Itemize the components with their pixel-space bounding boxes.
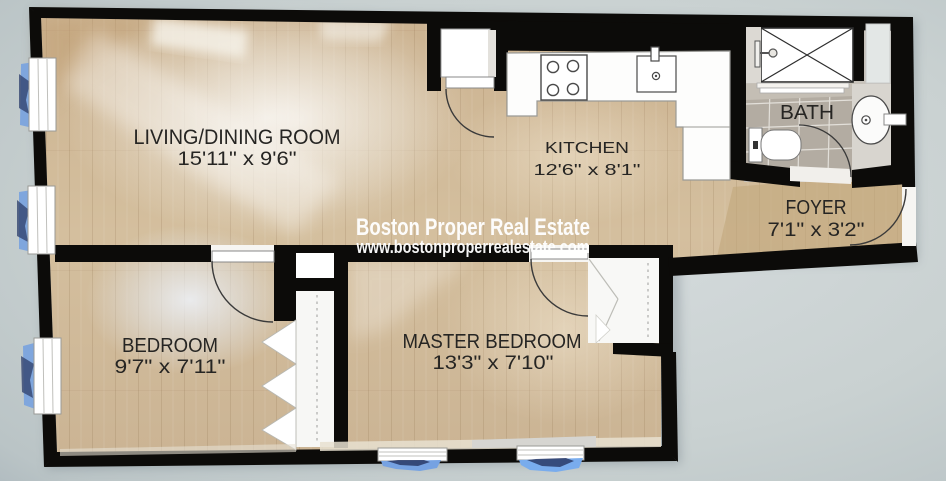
svg-text:KITCHEN: KITCHEN xyxy=(545,140,629,157)
svg-text:13'3" x 7'10": 13'3" x 7'10" xyxy=(433,353,554,374)
svg-text:BEDROOM: BEDROOM xyxy=(122,335,218,357)
svg-text:MASTER BEDROOM: MASTER BEDROOM xyxy=(403,331,582,353)
svg-text:9'7" x 7'11": 9'7" x 7'11" xyxy=(115,357,226,378)
svg-text:LIVING/DINING ROOM: LIVING/DINING ROOM xyxy=(134,126,341,149)
svg-text:www.bostonproperrealestate.com: www.bostonproperrealestate.com xyxy=(356,237,590,257)
svg-text:BATH: BATH xyxy=(780,102,834,124)
svg-text:12'6" x 8'1": 12'6" x 8'1" xyxy=(534,162,641,179)
svg-text:FOYER: FOYER xyxy=(786,197,847,219)
svg-text:15'11" x 9'6": 15'11" x 9'6" xyxy=(178,149,297,170)
svg-text:7'1" x 3'2": 7'1" x 3'2" xyxy=(768,220,865,241)
